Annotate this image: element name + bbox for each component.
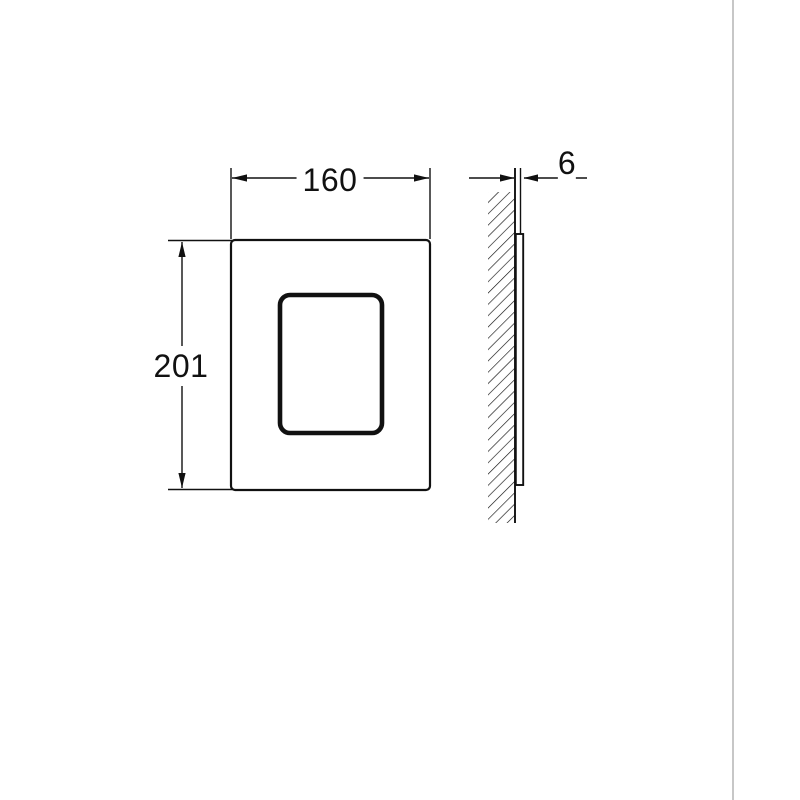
depth-dimension-label: 6 [558,147,576,179]
technical-drawing [0,0,800,800]
page-divider-line [732,0,734,800]
arrow-right-icon [414,174,429,181]
front-view [231,240,430,490]
arrow-down-icon [178,473,185,488]
plate-outline [231,240,430,490]
plate-profile [516,234,523,485]
flush-button-outline [280,295,382,433]
arrow-up-icon [178,242,185,257]
arrow-left-icon [524,174,539,181]
side-view [488,168,523,523]
width-dimension-label: 160 [297,164,364,196]
arrow-right-icon [500,174,515,181]
wall-hatching [488,192,515,523]
arrow-left-icon [232,174,247,181]
drawing-canvas: 160 201 6 [0,0,800,800]
height-dimension-label: 201 [152,346,211,386]
